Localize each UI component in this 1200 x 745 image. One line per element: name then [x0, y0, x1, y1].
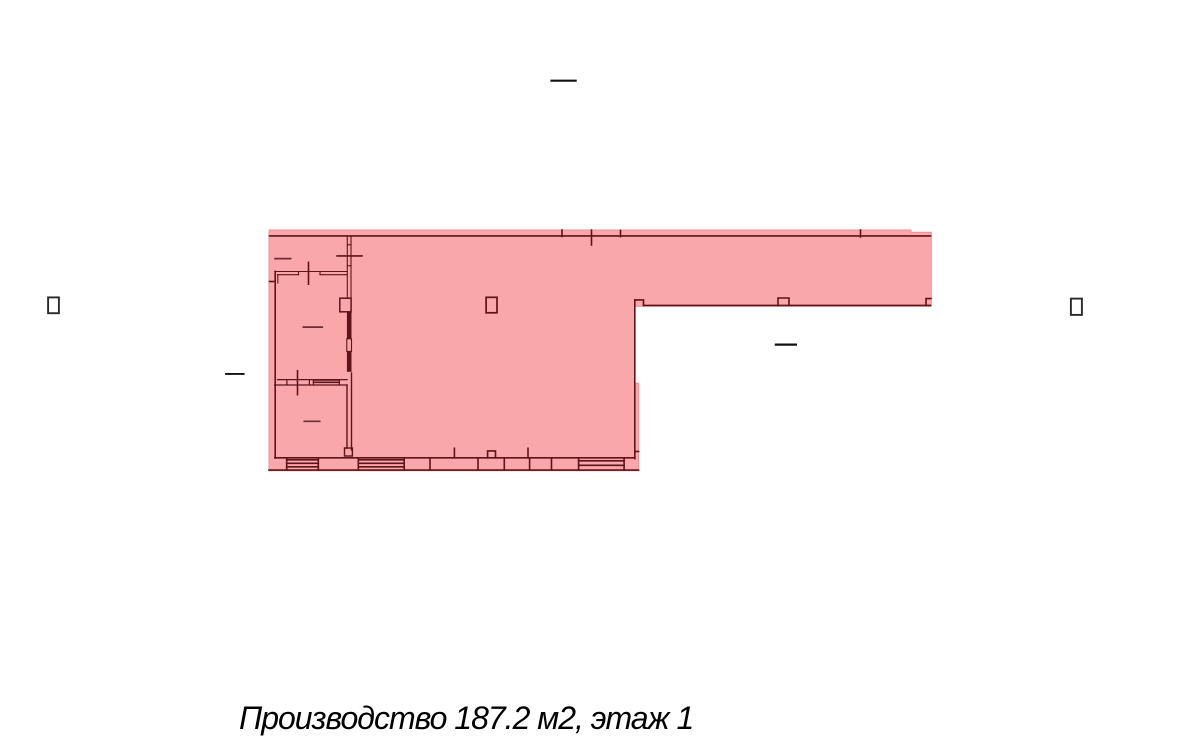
svg-text:Производство 187.2 м2, этаж 1: Производство 187.2 м2, этаж 1 [239, 700, 693, 736]
